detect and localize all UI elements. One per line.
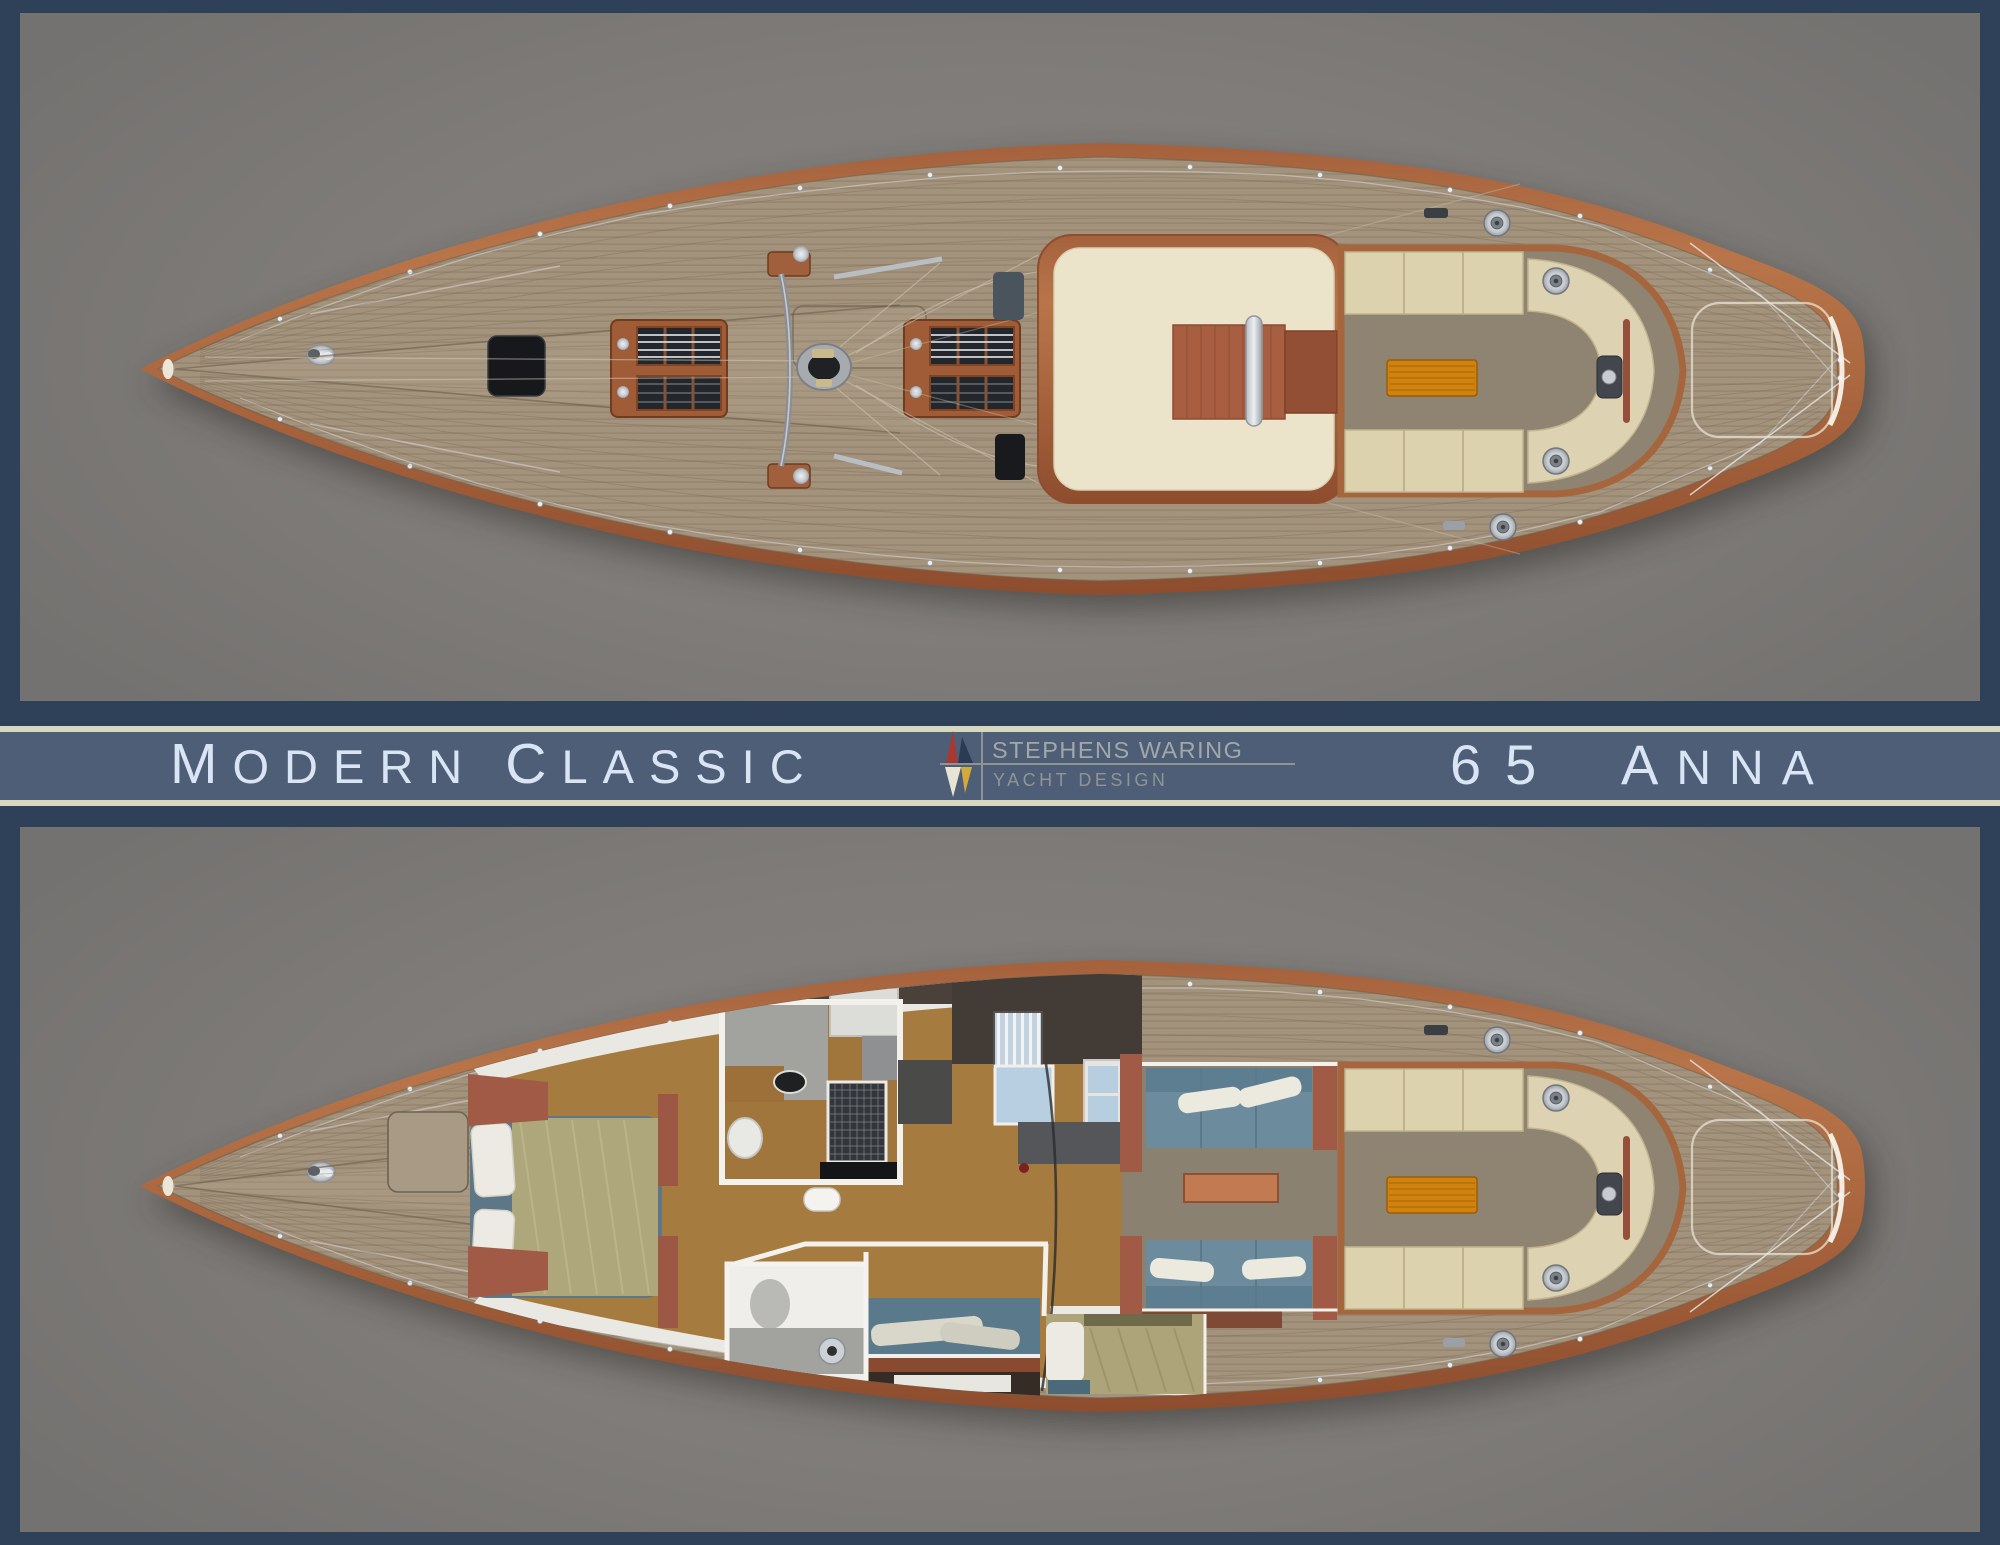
svg-text:YACHT DESIGN: YACHT DESIGN [993,770,1168,790]
svg-text:STEPHENS WARING: STEPHENS WARING [992,737,1243,763]
